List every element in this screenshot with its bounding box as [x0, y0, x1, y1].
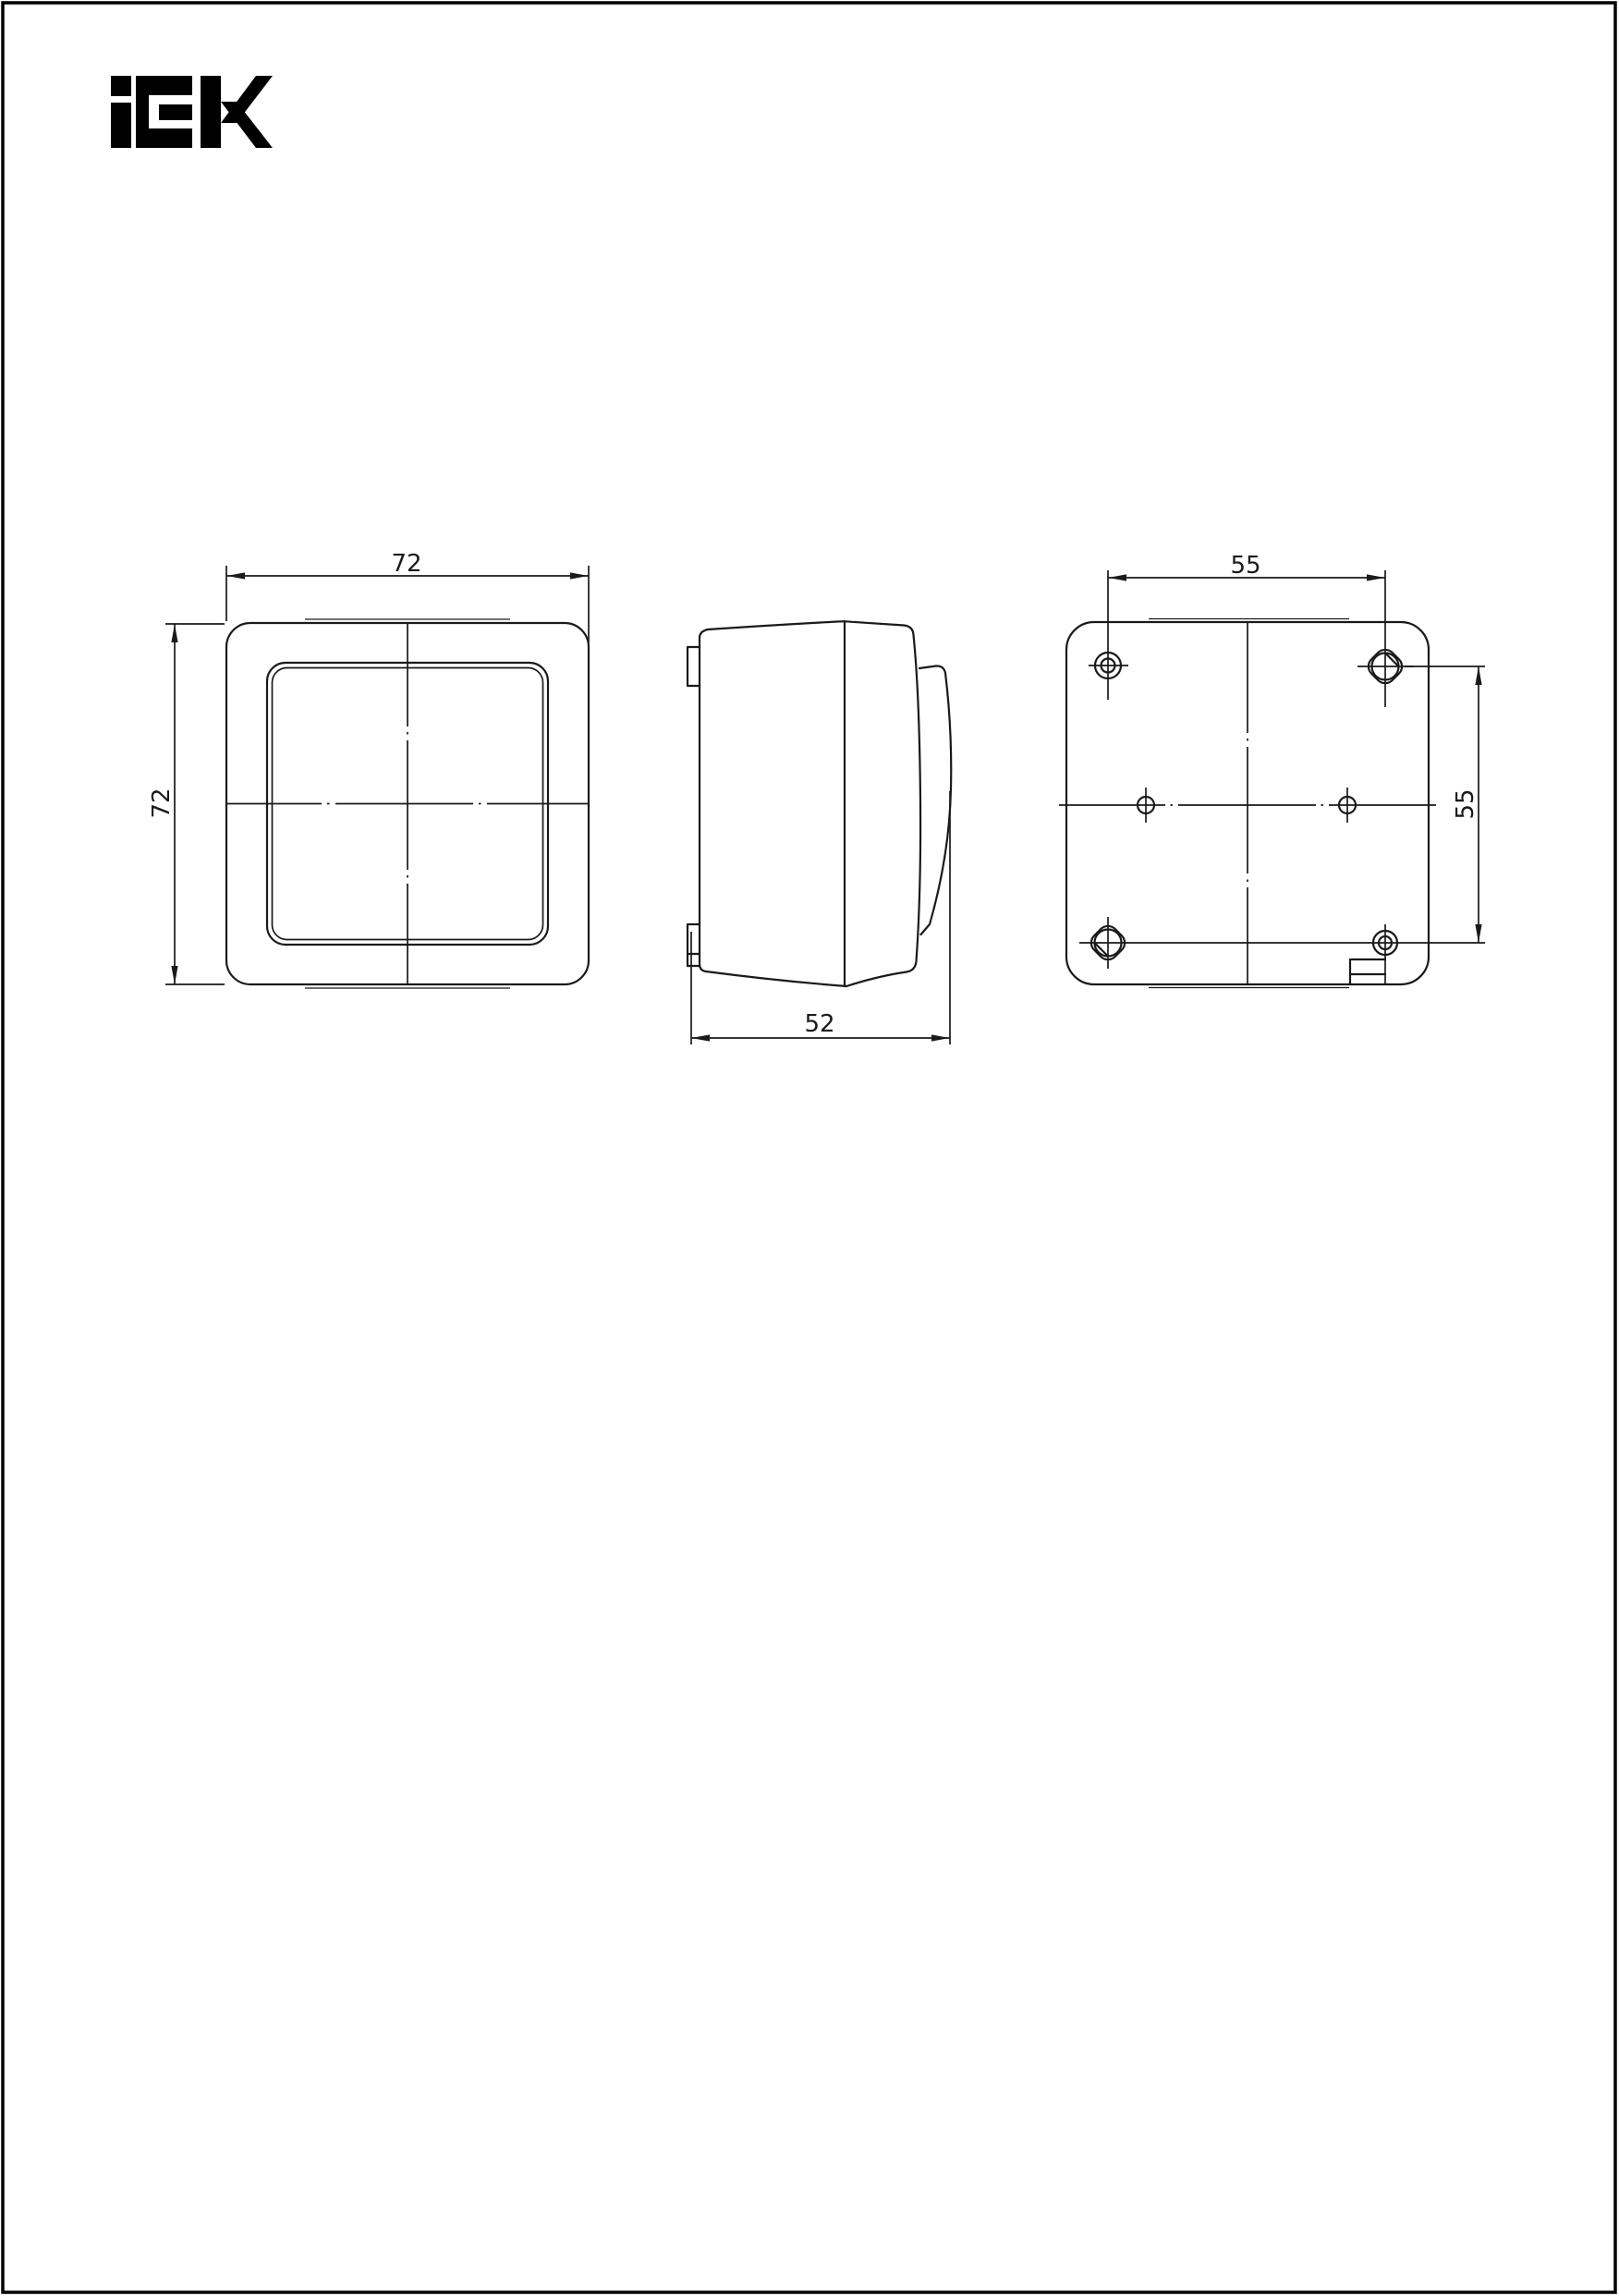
back-view — [1059, 619, 1436, 988]
drawing-page: IEK 72 72 — [0, 0, 1619, 2296]
logo-e — [136, 76, 192, 148]
side-body-outline — [700, 621, 920, 986]
side-depth-dimension: 52 — [691, 791, 950, 1044]
back-hole-spacing-horizontal-dimension: 55 — [1108, 552, 1385, 707]
front-height-label: 72 — [148, 788, 176, 818]
front-width-label: 72 — [391, 550, 421, 578]
page-border — [3, 3, 1615, 2292]
front-height-dimension: 72 — [148, 624, 225, 984]
side-top-mounting-tab — [688, 647, 700, 686]
back-cable-entry-notch — [1350, 959, 1385, 984]
logo-i-dot — [111, 76, 131, 96]
back-hole-spacing-horizontal-label: 55 — [1230, 552, 1260, 580]
logo-k — [201, 76, 273, 148]
front-view — [225, 619, 589, 988]
back-hole-spacing-vertical-label: 55 — [1452, 788, 1479, 819]
logo-i-stem — [111, 103, 131, 148]
drawing-canvas: IEK 72 72 — [0, 0, 1619, 2296]
side-view — [688, 621, 951, 986]
back-hole-bottom-right — [1373, 924, 1397, 984]
side-depth-label: 52 — [804, 1010, 834, 1038]
side-bottom-mounting-tab — [688, 924, 700, 966]
iek-logo: IEK — [111, 76, 273, 148]
side-rocker-profile — [919, 666, 951, 934]
